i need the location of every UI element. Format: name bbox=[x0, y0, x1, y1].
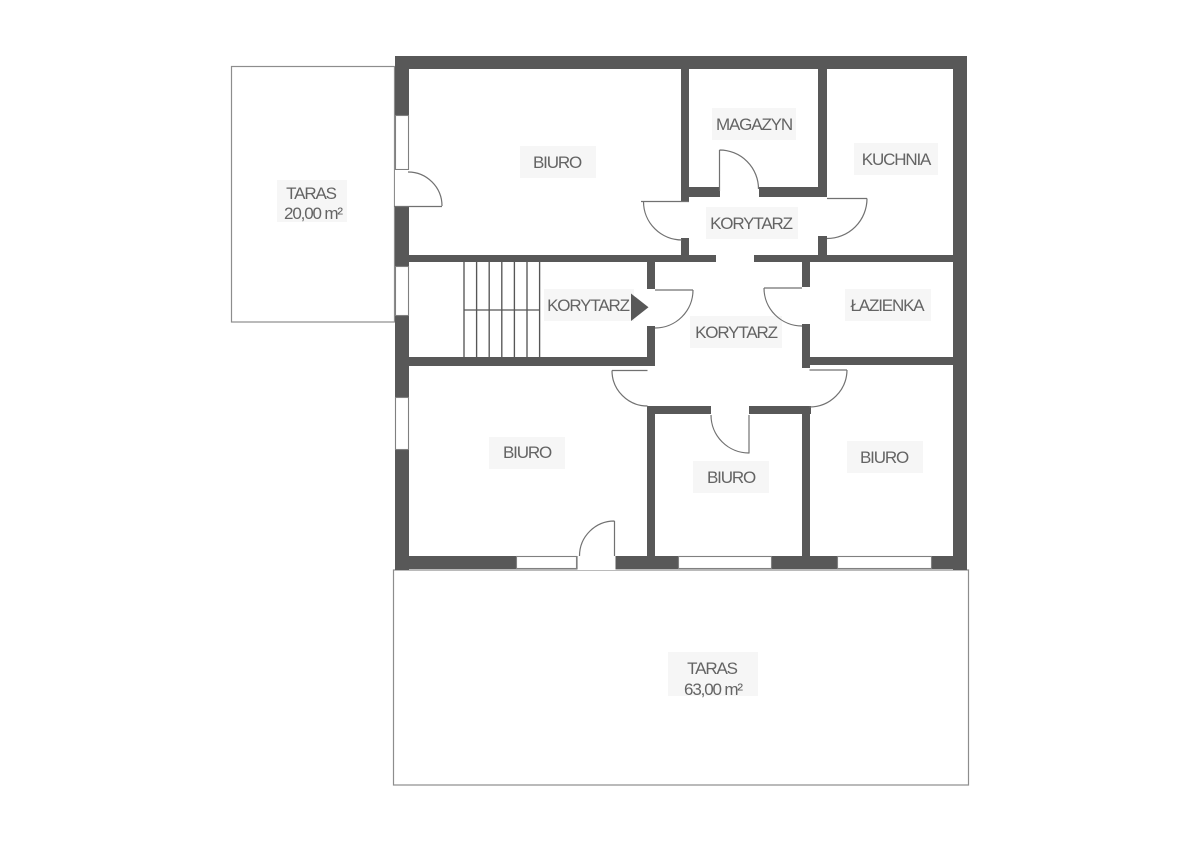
svg-text:BIURO: BIURO bbox=[860, 448, 909, 467]
svg-text:ŁAZIENKA: ŁAZIENKA bbox=[851, 296, 926, 315]
svg-text:MAGAZYN: MAGAZYN bbox=[716, 115, 792, 134]
svg-text:KORYTARZ: KORYTARZ bbox=[547, 296, 630, 315]
svg-text:KORYTARZ: KORYTARZ bbox=[710, 214, 793, 233]
svg-text:BIURO: BIURO bbox=[503, 443, 552, 462]
svg-text:KORYTARZ: KORYTARZ bbox=[695, 323, 778, 342]
svg-text:TARAS: TARAS bbox=[687, 659, 737, 678]
svg-text:BIURO: BIURO bbox=[533, 153, 582, 172]
svg-text:BIURO: BIURO bbox=[707, 468, 756, 487]
svg-text:63,00 m²: 63,00 m² bbox=[684, 680, 743, 699]
svg-text:KUCHNIA: KUCHNIA bbox=[862, 150, 932, 169]
svg-text:20,00 m²: 20,00 m² bbox=[284, 204, 343, 223]
svg-text:TARAS: TARAS bbox=[286, 184, 336, 203]
